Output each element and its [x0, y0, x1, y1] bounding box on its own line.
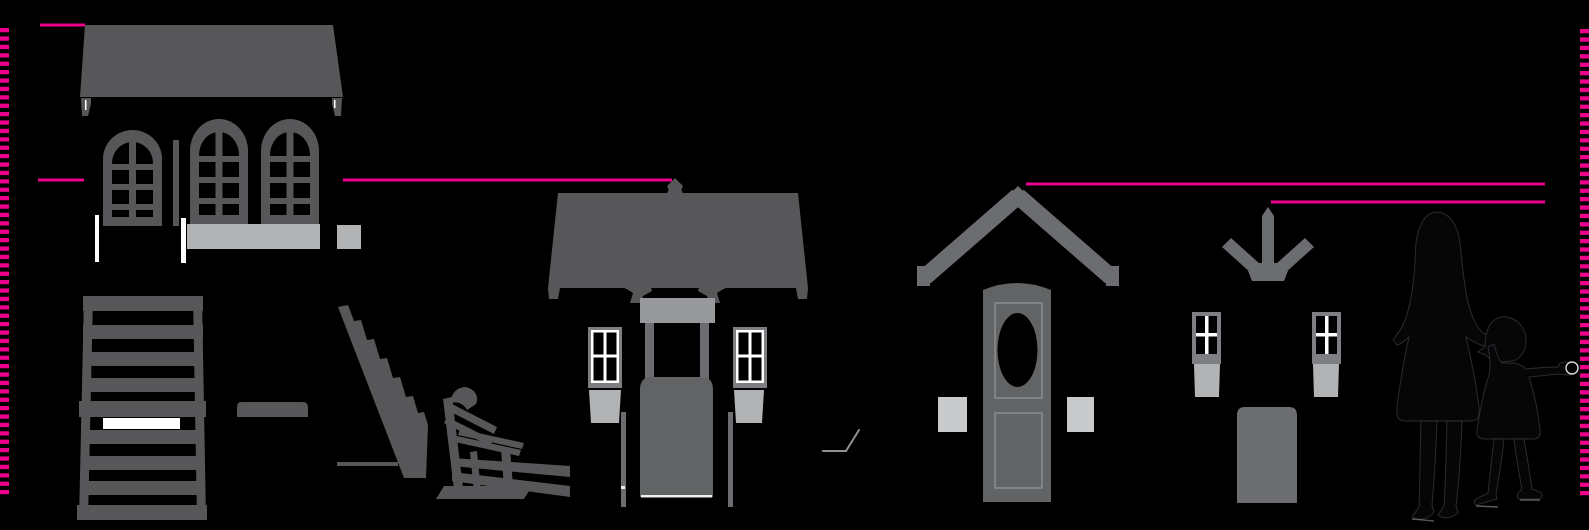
slat-wide	[79, 401, 206, 417]
slat	[83, 378, 203, 392]
child-leg-left	[1474, 439, 1504, 505]
porch-block	[337, 225, 361, 249]
child-hand	[1566, 362, 1578, 374]
roof-corner-right	[332, 98, 342, 116]
adult-foot-fringe	[1412, 519, 1434, 521]
side-box-left	[938, 397, 967, 432]
planter-box-left	[589, 390, 621, 423]
diagram-canvas	[0, 0, 1589, 530]
adult-figure	[1393, 212, 1492, 521]
child-body	[1477, 344, 1577, 439]
stringer-base-line	[337, 462, 398, 466]
child-head	[1478, 317, 1526, 362]
two-story-cottage-playhouse	[80, 25, 361, 263]
box-right	[1313, 364, 1339, 397]
porch-band	[187, 224, 320, 249]
chevron-foot-right	[1106, 266, 1119, 286]
arched-window-1	[103, 130, 162, 226]
roof-corner-right-notch	[334, 100, 336, 108]
slat	[81, 481, 205, 495]
base-panel	[1237, 407, 1297, 503]
planter-box-right	[734, 390, 764, 423]
slat	[83, 296, 203, 311]
eave-drop-right	[796, 288, 808, 299]
porch-header	[640, 298, 715, 323]
window-right	[1312, 312, 1341, 397]
comparison-diagram	[0, 0, 1589, 530]
mid-leg	[470, 451, 481, 492]
child-leg-right	[1514, 439, 1542, 499]
wall-strip	[173, 140, 179, 226]
arrow-window-kit	[1192, 207, 1341, 503]
step-plank	[237, 402, 308, 417]
door-threshold	[641, 495, 712, 498]
white-slat	[103, 418, 180, 429]
adult-leg-right	[1438, 421, 1462, 518]
adult-body	[1393, 212, 1492, 421]
slat	[82, 456, 204, 470]
door-frame-left	[645, 323, 654, 380]
base-slat	[77, 505, 207, 520]
side-box-right	[1067, 397, 1094, 432]
porch-post-left-notch	[621, 486, 625, 489]
slatted-ladder-panel	[77, 296, 207, 520]
window-left	[1192, 312, 1221, 397]
down-arrow	[1222, 207, 1314, 281]
porch-post-right	[728, 412, 733, 507]
gabled-porch-playhouse	[548, 178, 808, 507]
door	[640, 377, 713, 497]
white-post-2	[181, 218, 186, 263]
child-figure	[1474, 317, 1578, 507]
slat	[82, 430, 204, 444]
eave-drop-left	[548, 288, 560, 299]
garden-bench	[436, 387, 570, 499]
base-board	[436, 486, 532, 499]
roof-corner-left-notch	[85, 100, 87, 110]
window-right	[733, 327, 767, 388]
roof	[80, 25, 343, 97]
white-post-1	[95, 215, 99, 262]
window-left	[588, 327, 622, 388]
small-bracket-mark	[823, 430, 859, 451]
arched-window-2	[190, 119, 248, 224]
scale-figures	[1393, 212, 1578, 521]
slat	[83, 325, 203, 339]
door-frame-right	[700, 323, 709, 380]
slat	[83, 352, 203, 366]
window-cap	[1312, 357, 1341, 364]
backrest-slat-1	[449, 404, 497, 434]
box-left	[1194, 364, 1220, 397]
window-cap	[1192, 357, 1221, 364]
chevron-roof-door-kit	[823, 186, 1119, 502]
chevron-foot-left	[917, 266, 930, 286]
adult-leg-left	[1412, 421, 1437, 519]
chevron-roof	[925, 196, 1111, 277]
oval-window	[998, 313, 1038, 387]
arched-window-3	[261, 119, 319, 224]
porch-post-left	[621, 412, 626, 507]
stair-stringer	[337, 305, 428, 478]
stringer-body	[338, 305, 428, 478]
